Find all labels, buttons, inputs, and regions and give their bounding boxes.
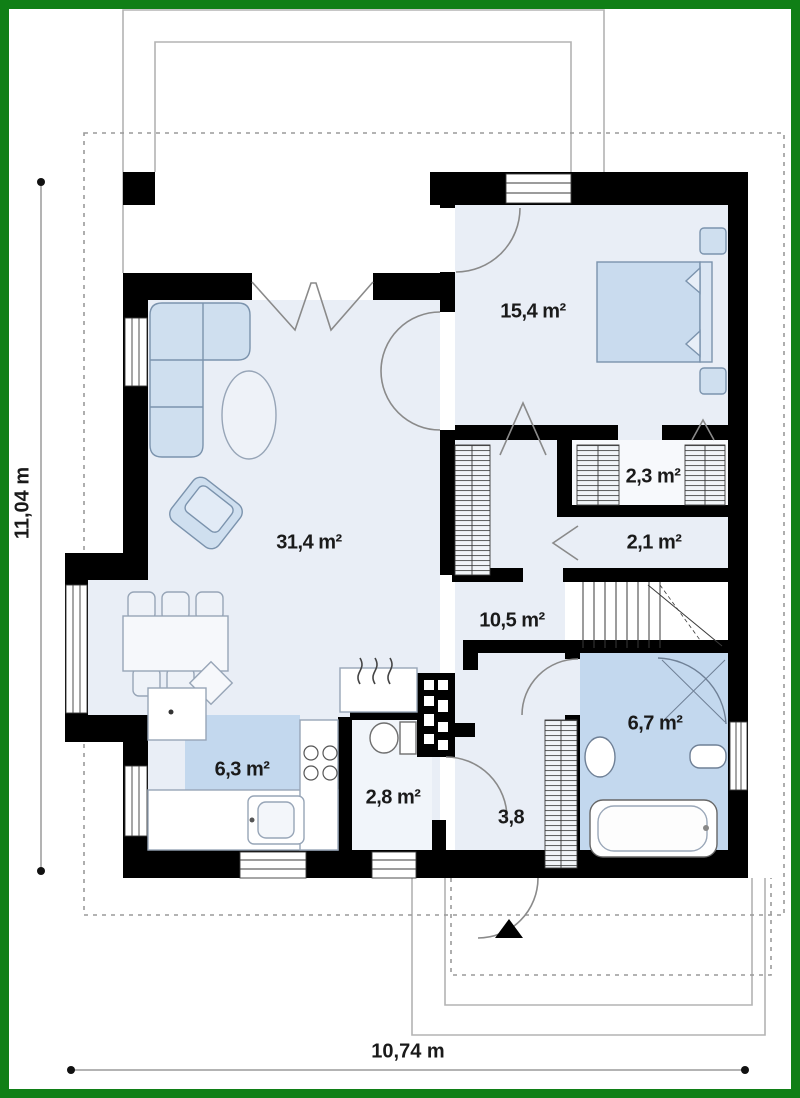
hall-wardrobe [455,445,490,575]
bed [597,262,712,362]
bathtub [590,800,717,857]
room-label-wardrobe: 2,3 m² [626,466,681,489]
room-label-bathroom: 6,7 m² [628,713,683,736]
floor-plan-canvas: 31,4 m² 15,4 m² 2,3 m² 2,1 m² 10,5 m² 6,… [0,0,800,1098]
nightstand-bottom [700,368,726,394]
window-bedroom-top [506,174,571,203]
window-kitchen-bottom [240,852,306,878]
wardrobe-closet-right [685,445,725,505]
room-label-living: 31,4 m² [276,532,341,555]
window-entry-bottom [372,852,416,878]
room-label-hall: 10,5 m² [479,610,544,633]
chimney-block [417,673,455,757]
room-label-corridor: 2,1 m² [627,532,682,555]
wardrobe-closet-left [577,445,619,505]
room-label-wc: 2,8 m² [366,787,421,810]
dimension-width-label: 10,74 m [371,1041,444,1064]
bathroom-sink [585,737,615,777]
kitchen-sink [248,796,304,844]
window-bathroom-right [730,722,747,790]
room-label-entry: 3,8 [498,807,524,830]
nightstand-top [700,228,726,254]
bathroom-radiator [690,745,726,768]
window-kitchen-left [125,766,147,836]
toilet [370,722,416,754]
round-rug [222,371,276,459]
dimension-height-label: 11,04 m [12,467,35,539]
window-living-left [125,318,147,386]
entry-wardrobe [545,720,577,868]
porch-outline [412,878,765,1035]
room-label-bedroom: 15,4 m² [500,301,565,324]
room-label-kitchen: 6,3 m² [215,759,270,782]
window-bay [66,585,87,713]
